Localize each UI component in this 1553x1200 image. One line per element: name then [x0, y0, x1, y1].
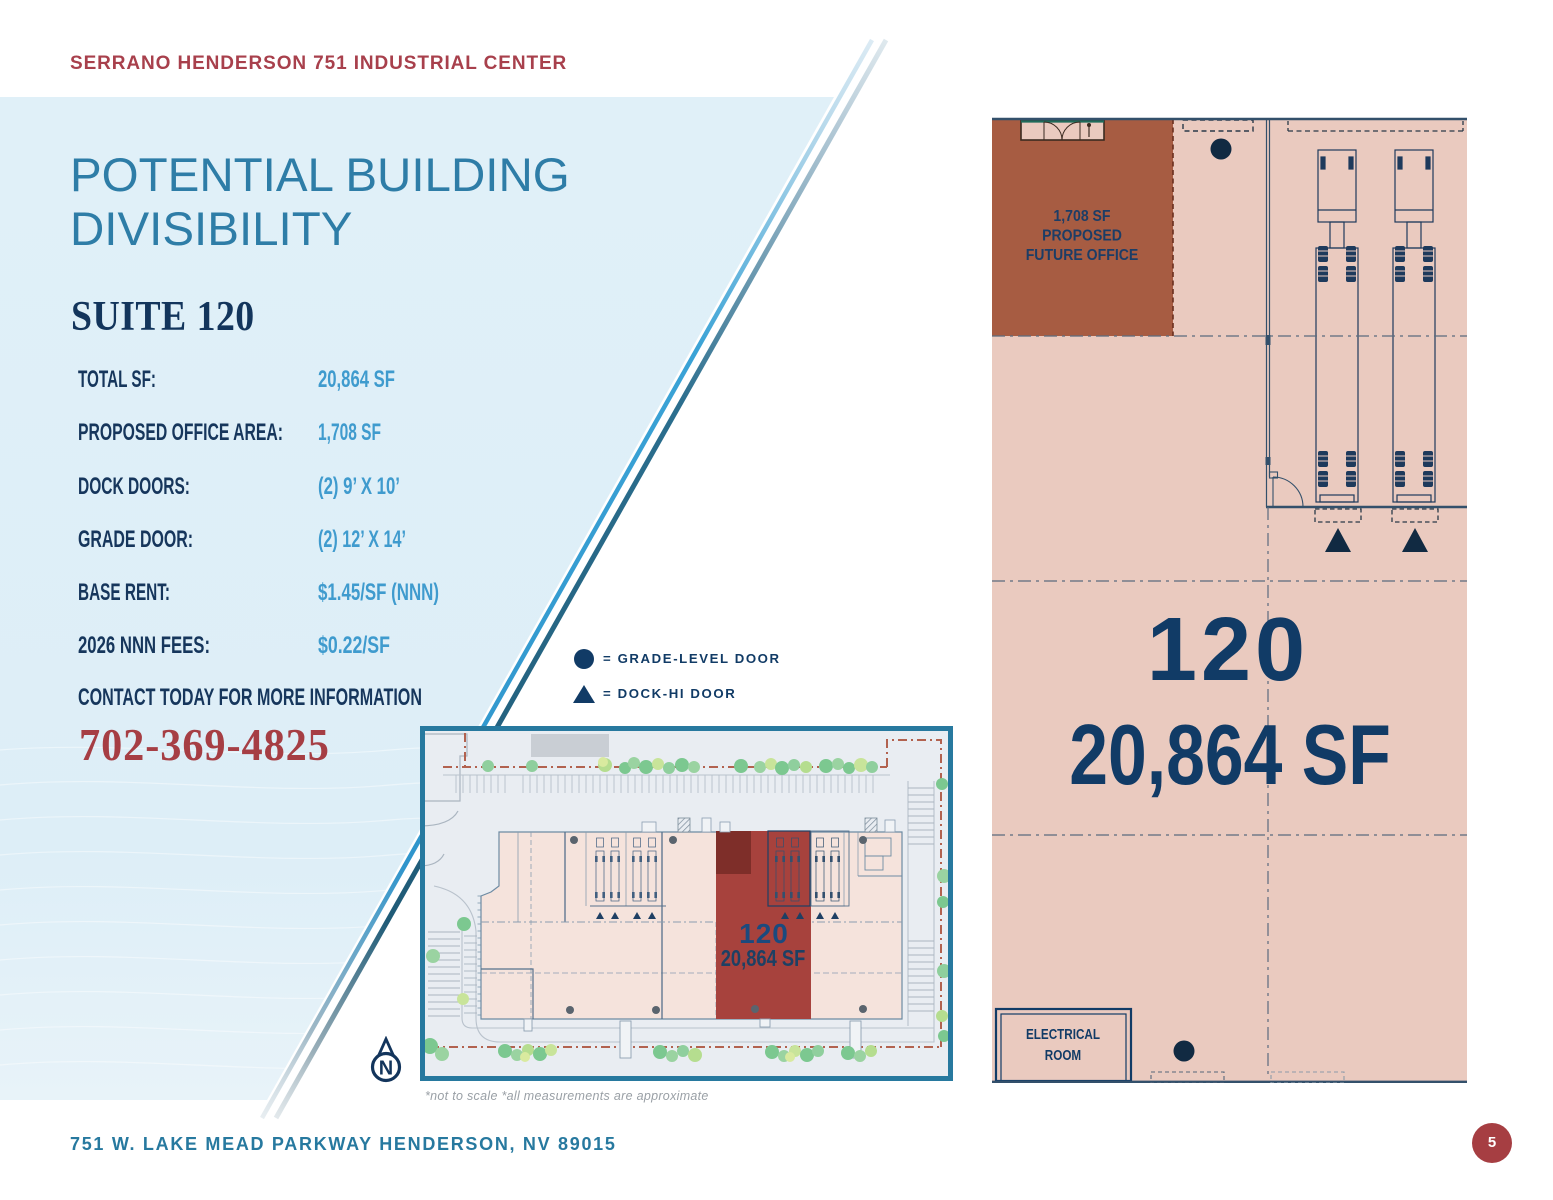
svg-text:20,864 SF: 20,864 SF [1069, 709, 1391, 803]
svg-text:ROOM: ROOM [1045, 1047, 1081, 1064]
svg-text:PROPOSED: PROPOSED [1042, 227, 1122, 245]
svg-text:1,708 SF: 1,708 SF [1053, 207, 1110, 225]
svg-text:ELECTRICAL: ELECTRICAL [1026, 1026, 1100, 1043]
svg-text:20,864 SF: 20,864 SF [721, 946, 806, 972]
svg-text:120: 120 [1147, 600, 1309, 700]
svg-text:120: 120 [739, 918, 789, 949]
svg-text:FUTURE OFFICE: FUTURE OFFICE [1026, 246, 1139, 264]
svg-text:N: N [379, 1058, 393, 1080]
